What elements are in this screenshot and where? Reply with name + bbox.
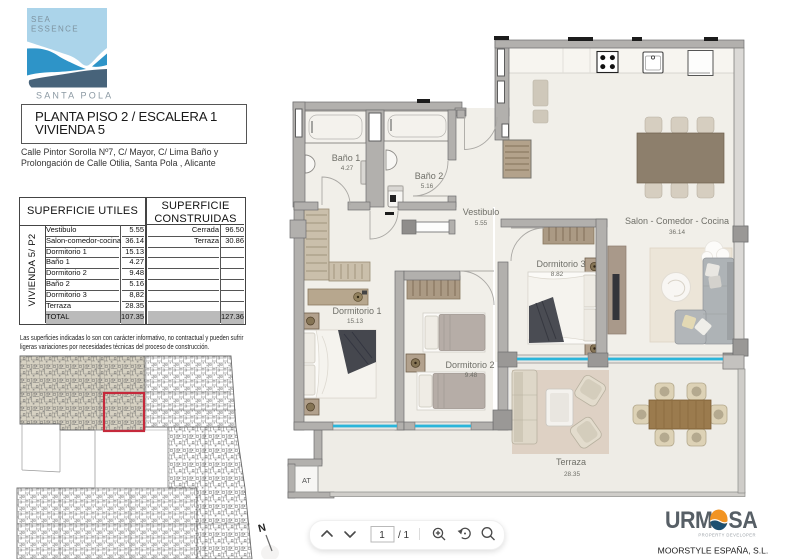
- svg-text:1: 1: [379, 530, 385, 541]
- svg-text:Dormitorio 2: Dormitorio 2: [445, 360, 494, 370]
- svg-text:/ 1: / 1: [398, 530, 410, 541]
- svg-text:28.35: 28.35: [564, 471, 580, 478]
- svg-text:N: N: [257, 522, 267, 535]
- svg-text:Dormitorio 1: Dormitorio 1: [332, 306, 381, 316]
- svg-text:Terraza: Terraza: [556, 457, 586, 467]
- svg-text:Baño 2: Baño 2: [415, 171, 444, 181]
- svg-text:5.16: 5.16: [421, 183, 434, 190]
- svg-text:Salon - Comedor - Cocina: Salon - Comedor - Cocina: [625, 216, 729, 226]
- svg-text:Vestibulo: Vestibulo: [463, 207, 500, 217]
- svg-text:5.55: 5.55: [475, 220, 488, 227]
- svg-text:ESSENCE: ESSENCE: [31, 25, 79, 34]
- svg-text:SEA: SEA: [31, 15, 51, 24]
- svg-text:Baño 1: Baño 1: [332, 153, 361, 163]
- svg-text:AT: AT: [302, 476, 311, 485]
- svg-text:Dormitorio 3: Dormitorio 3: [536, 259, 585, 269]
- svg-text:8.82: 8.82: [551, 271, 564, 278]
- svg-text:MOORSTYLE ESPAÑA, S.L.: MOORSTYLE ESPAÑA, S.L.: [658, 546, 769, 556]
- svg-text:15.13: 15.13: [347, 318, 363, 325]
- svg-text:SA: SA: [728, 506, 757, 534]
- svg-text:SANTA POLA: SANTA POLA: [36, 91, 113, 101]
- svg-text:9.48: 9.48: [465, 372, 478, 379]
- svg-text:4.27: 4.27: [341, 165, 354, 172]
- svg-text:PROPERTY DEVELOPER: PROPERTY DEVELOPER: [698, 532, 756, 537]
- svg-text:URM: URM: [665, 506, 712, 534]
- svg-text:36.14: 36.14: [669, 229, 685, 236]
